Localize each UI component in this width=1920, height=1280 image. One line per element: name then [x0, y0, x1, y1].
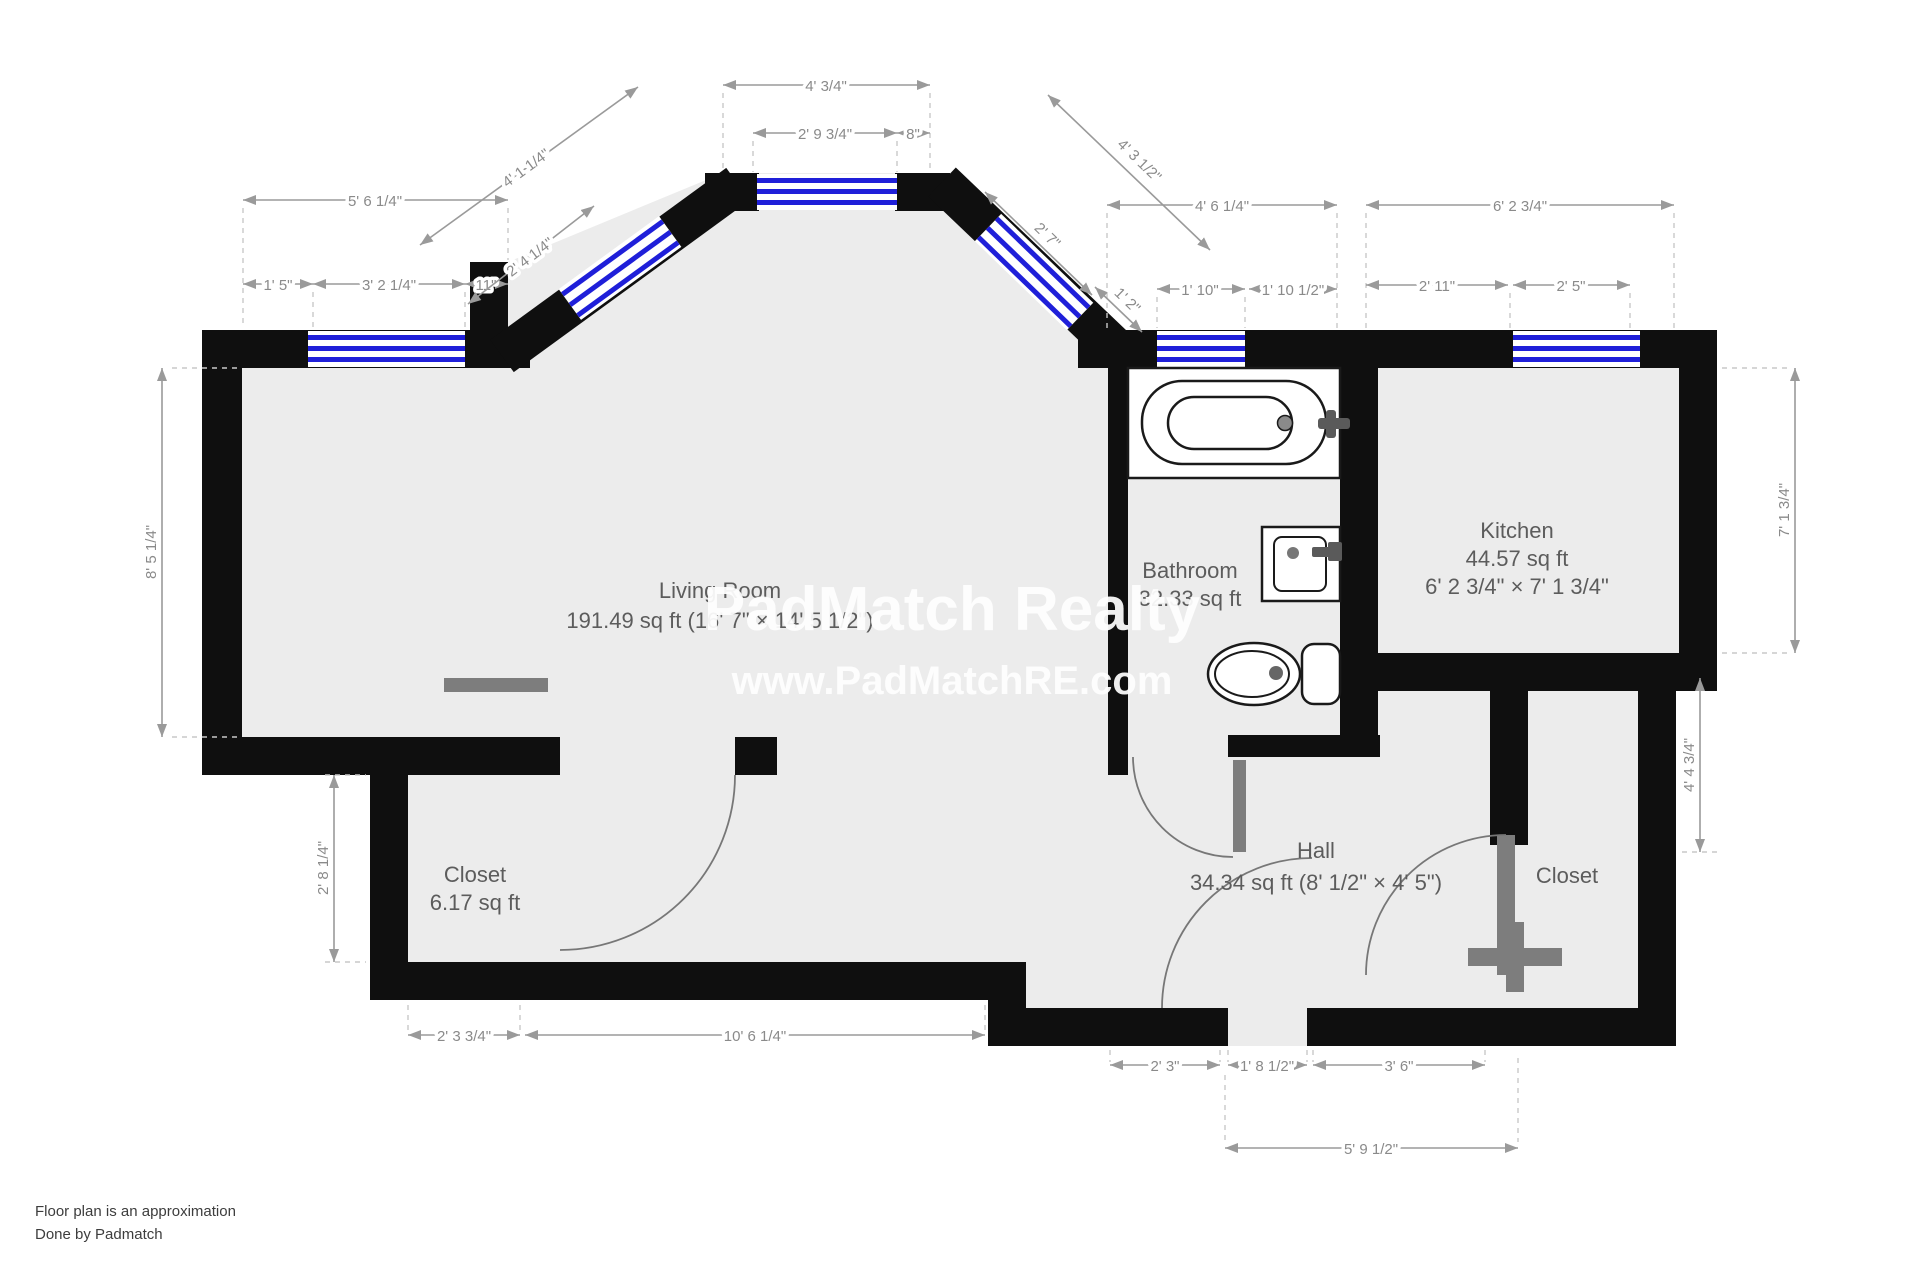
door-leaf-bathroom	[1233, 760, 1246, 852]
dim-top-left-total: 5' 6 1/4"	[243, 193, 508, 210]
toilet	[1208, 643, 1340, 705]
wall-right-outer	[1679, 330, 1717, 691]
watermark-line1: PadMatch Realty	[704, 575, 1201, 644]
dim-bottom-living: 10' 6 1/4"	[525, 1028, 985, 1045]
dim-label: 1' 5"	[263, 277, 292, 294]
dim-hall-bottom-total: 5' 9 1/2"	[1225, 1141, 1518, 1158]
dim-kitchen-window: 2' 5"	[1513, 278, 1630, 295]
dim-label: 4' 4 3/4"	[1681, 738, 1698, 792]
wall-bottom-main	[370, 962, 1026, 1000]
kitchen-label: Kitchen	[1480, 518, 1553, 543]
kitchen-area: 44.57 sq ft	[1466, 546, 1569, 571]
dim-top-center-window: 2' 9 3/4"	[753, 126, 897, 143]
hall-label: Hall	[1297, 838, 1335, 863]
dim-bath-top-b: 1' 10 1/2"	[1249, 282, 1337, 299]
dim-diag-left-total: 4' 1 1/4"	[420, 87, 638, 245]
dim-label: 10' 6 1/4"	[724, 1028, 786, 1045]
watermark-line2: www.PadMatchRE.com	[731, 659, 1173, 703]
dim-bath-window: 1' 10"	[1157, 282, 1245, 299]
dim-kitchen-height: 7' 1 3/4"	[1776, 368, 1795, 653]
wall-bay-top-cap-left	[705, 173, 759, 211]
dim-label: 4' 3 1/2"	[1114, 136, 1165, 186]
dim-hall-bottom-b: 1' 8 1/2"	[1228, 1058, 1307, 1075]
floor-plan: 5' 6 1/4" 1' 5" 3' 2 1/4" 11" 4' 1 1/4" …	[0, 0, 1920, 1280]
dim-label: 2' 9 3/4"	[798, 126, 852, 143]
wall-hall-bottom-b	[1307, 1008, 1676, 1046]
window-living-left	[308, 331, 465, 367]
dim-label: 8' 5 1/4"	[143, 525, 160, 579]
kitchen-size: 6' 2 3/4" × 7' 1 3/4"	[1425, 574, 1609, 599]
bathtub-faucet-bar	[1318, 418, 1350, 429]
dim-label: 2' 5"	[1556, 278, 1585, 295]
footer-credit: Done by Padmatch	[35, 1226, 163, 1243]
closet-left-area: 6.17 sq ft	[430, 890, 521, 915]
dim-label: 3' 6"	[1384, 1058, 1413, 1075]
dim-diag-right-total: 4' 3 1/2"	[1048, 95, 1210, 250]
door-cross-vertical	[1506, 922, 1524, 992]
dim-label: 2' 3 3/4"	[437, 1028, 491, 1045]
dim-closet-left-height: 2' 8 1/4"	[315, 775, 334, 962]
closet-left-label: Closet	[444, 862, 506, 887]
watermark: PadMatch Realty www.PadMatchRE.com	[704, 575, 1201, 703]
wall-bathroom-bottom	[1228, 735, 1380, 757]
dim-label: 5' 6 1/4"	[348, 193, 402, 210]
dim-label: 1' 10"	[1181, 282, 1218, 299]
dim-left-height: 8' 5 1/4"	[143, 368, 162, 737]
dim-label: 2' 11"	[1419, 278, 1455, 295]
dim-label: 8"	[906, 126, 920, 143]
wall-bottom-step	[988, 962, 1026, 1046]
dim-hall-bottom-a: 2' 3"	[1110, 1058, 1220, 1075]
wall-closet-door-stub	[735, 737, 777, 775]
dim-bottom-closet: 2' 3 3/4"	[408, 1028, 520, 1045]
wall-living-bath-divider	[1108, 368, 1128, 775]
dim-hall-bottom-c: 3' 6"	[1313, 1058, 1485, 1075]
dim-label: 1' 10 1/2"	[1262, 282, 1324, 299]
footer: Floor plan is an approximation Done by P…	[35, 1203, 236, 1243]
toilet-flush-button	[1269, 666, 1283, 680]
hall-area: 34.34 sq ft (8' 1/2" × 4' 5")	[1190, 870, 1442, 895]
sink-faucet-handle	[1328, 542, 1342, 561]
dim-label: 11"	[476, 277, 497, 294]
window-bay-center	[757, 174, 897, 210]
dim-top-center-b: 8"	[897, 126, 930, 143]
dim-label: 1' 2"	[1111, 285, 1144, 317]
sink-drain	[1287, 547, 1299, 559]
dim-label: 2' 3"	[1150, 1058, 1179, 1075]
footer-disclaimer: Floor plan is an approximation	[35, 1203, 236, 1220]
dim-top-left-window: 3' 2 1/4"	[313, 277, 465, 294]
bathtub	[1128, 368, 1350, 478]
wall-closet-right-outer	[1638, 653, 1676, 1013]
dim-label: 1' 8 1/2"	[1240, 1058, 1294, 1075]
dim-bath-top-total: 4' 6 1/4"	[1107, 198, 1337, 215]
window-bathroom	[1157, 331, 1245, 367]
window-kitchen	[1513, 331, 1640, 367]
wall-hall-closet-divider	[1490, 691, 1528, 845]
dim-label: 7' 1 3/4"	[1776, 483, 1793, 537]
sink	[1262, 527, 1342, 601]
dim-label: 4' 6 1/4"	[1195, 198, 1249, 215]
floor-plan-page: 5' 6 1/4" 1' 5" 3' 2 1/4" 11" 4' 1 1/4" …	[0, 0, 1920, 1280]
dim-closet-right-height: 4' 4 3/4"	[1681, 678, 1700, 852]
dim-kitchen-top-a: 2' 11"	[1366, 278, 1508, 295]
dim-label: 4' 1 1/4"	[499, 146, 553, 192]
dim-kitchen-top-total: 6' 2 3/4"	[1366, 198, 1674, 215]
wall-hall-bottom-a	[1026, 1008, 1228, 1046]
dim-label: 3' 2 1/4"	[362, 277, 416, 294]
wall-left-outer	[202, 330, 242, 775]
dim-top-center-total: 4' 3/4"	[723, 78, 930, 95]
closet-right-label: Closet	[1536, 863, 1598, 888]
dim-label: 6' 2 3/4"	[1493, 198, 1547, 215]
dim-label: 4' 3/4"	[805, 78, 847, 95]
bathtub-drain	[1278, 416, 1293, 431]
door-leaf-closet-left	[444, 678, 548, 692]
dim-label: 2' 8 1/4"	[315, 841, 332, 895]
dim-top-left-a: 1' 5"	[243, 277, 313, 294]
dim-label: 5' 9 1/2"	[1344, 1141, 1398, 1158]
wall-living-bottom	[202, 737, 560, 775]
